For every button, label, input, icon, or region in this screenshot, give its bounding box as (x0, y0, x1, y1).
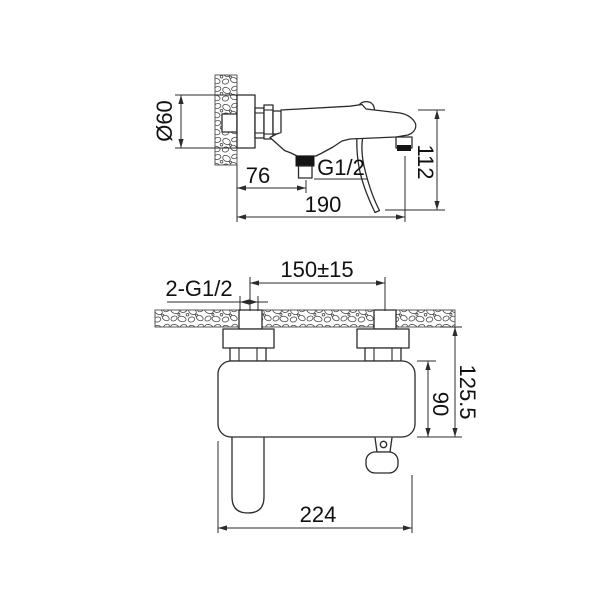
wall-section-vertical (215, 75, 237, 165)
dim-label-inlet-centers: 150±15 (280, 257, 353, 282)
thread-label: G1/2 (317, 155, 365, 180)
dim-label-overall-width: 224 (300, 502, 337, 527)
spout-body (270, 105, 416, 157)
dim-inlet-threads: 2-G1/2 (165, 276, 268, 311)
mixer-body (218, 361, 415, 437)
dim-label-height: 112 (413, 144, 438, 179)
outlet-thread-callout: G1/2 (314, 155, 367, 180)
dim-label-wall-to-outlet: 76 (246, 163, 270, 188)
dim-label-diameter: Ø60 (152, 100, 177, 142)
dim-label-projection: 190 (305, 192, 342, 217)
wall-section-horizontal (155, 310, 455, 329)
outlet-thread-stub (296, 156, 314, 178)
dim-inlet-centers: 150±15 (250, 257, 385, 311)
dim-wall-to-outlet: 76 (237, 163, 306, 222)
escutcheon-flange (237, 95, 255, 148)
diverter-knob (366, 438, 398, 473)
plan-view: 2-G1/2 150±15 90 125.5 (155, 257, 480, 533)
connection-nut-right (365, 348, 401, 361)
diverter-pin-hole (380, 441, 386, 447)
dim-label-inlet-threads: 2-G1/2 (165, 276, 232, 301)
drawing-canvas: Ø60 76 G1/2 190 (0, 0, 600, 600)
handle-cylinder (232, 437, 264, 513)
inlet-square-left (239, 310, 262, 329)
dim-label-total-depth: 125.5 (455, 364, 480, 419)
aerator (396, 137, 412, 151)
escutcheon-left (223, 329, 274, 348)
inlet-square-right (374, 310, 396, 329)
dim-label-body-depth: 90 (428, 392, 453, 416)
dim-total-depth: 125.5 (440, 327, 480, 437)
technical-drawing: Ø60 76 G1/2 190 (0, 0, 600, 600)
escutcheon-right (357, 329, 409, 348)
side-view: Ø60 76 G1/2 190 (152, 75, 445, 222)
inlet-square-embedded (222, 114, 237, 132)
connection-nut-left (230, 348, 266, 361)
